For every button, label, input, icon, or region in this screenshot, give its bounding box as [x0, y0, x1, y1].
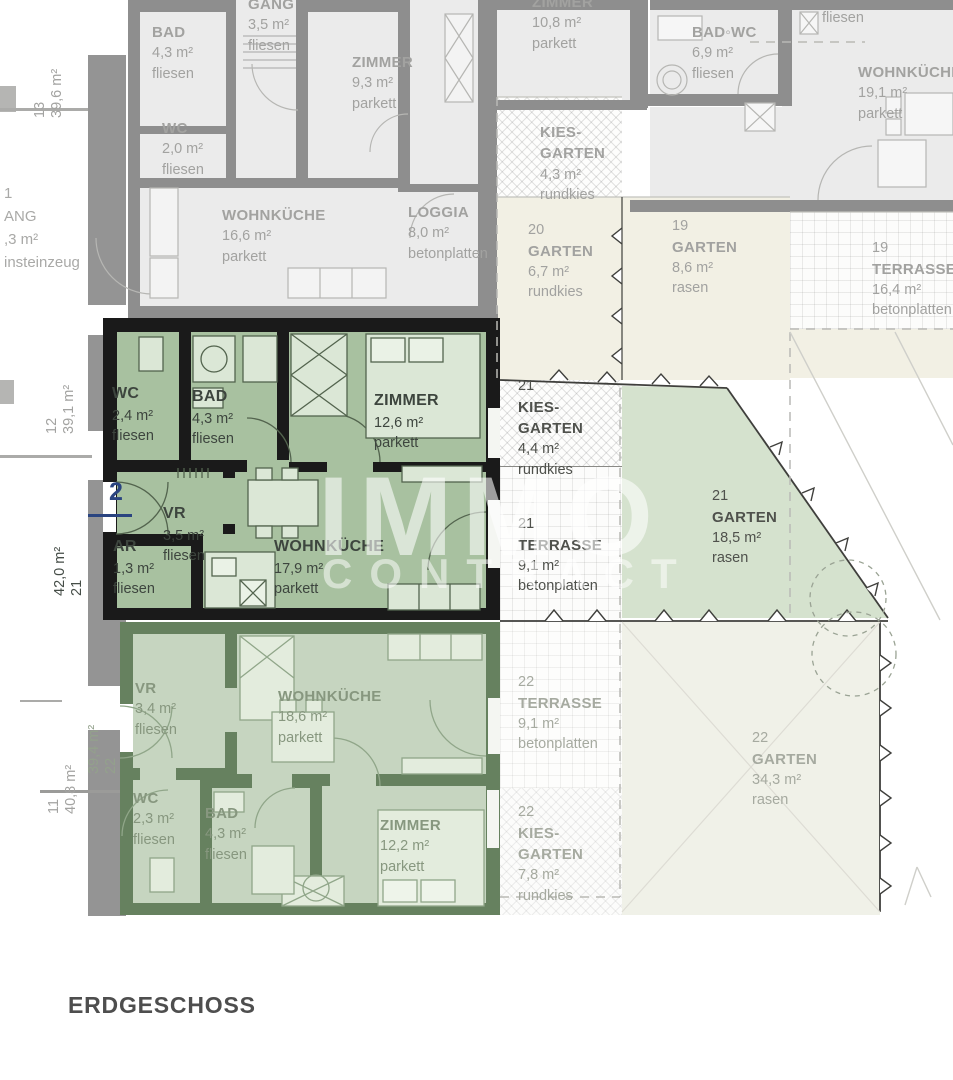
wall-top-2	[128, 0, 232, 12]
room-label-zimmer-top: ZIMMER 9,3 m² parkett	[352, 52, 413, 114]
room-label-wc-21: WC 2,4 m² fliesen	[112, 383, 154, 447]
room-label-wohnkueche-top: WOHNKÜCHE 16,6 m² parkett	[222, 205, 326, 267]
wall-top-7	[226, 0, 236, 182]
room-label-wohnkueche-22: WOHNKÜCHE 18,6 m² parkett	[278, 686, 382, 748]
unit21-door-opening-bad	[247, 460, 289, 472]
unit21-door-opening-vr	[223, 478, 235, 524]
wall-top-8	[296, 0, 308, 182]
wall-top-16	[497, 100, 647, 110]
area-label-kiesgarten-22: 22 KIES- GARTEN 7,8 m² rundkies	[518, 802, 583, 906]
room-label-bad-21: BAD 4,3 m² fliesen	[192, 386, 234, 450]
room-label-zimmer2-top: ZIMMER 10,8 m² parkett	[532, 0, 593, 54]
room-label-zimmer-21: ZIMMER 12,6 m² parkett	[374, 390, 439, 454]
margin-label-unit22: 39,4 m² 22	[86, 725, 120, 774]
wall-line-3	[20, 700, 62, 702]
unit22-door-opening-zimmer	[330, 774, 376, 788]
area-label-kiesgarten-top: KIES- GARTEN 4,3 m² rundkies	[540, 122, 605, 206]
room-label-ar-21: AR 1,3 m² fliesen	[113, 536, 155, 600]
wall-top-15	[630, 0, 648, 108]
area-garten-22	[622, 622, 880, 915]
unit21-door-opening-zimmer	[327, 460, 373, 472]
wall-top-6	[782, 0, 953, 10]
unit21-room-wohnkueche-nook	[203, 534, 247, 608]
unit22-entry-door	[120, 704, 133, 752]
room-label-badwc: BAD◦WC 6,9 m² fliesen	[692, 22, 757, 84]
wall-top-19	[630, 200, 953, 212]
area-label-terrasse-22: 22 TERRASSE 9,1 m² betonplatten	[518, 672, 602, 755]
room-label-bad-top: BAD 4,3 m² fliesen	[152, 22, 194, 84]
area-label-terrasse-21: 21 TERRASSE 9,1 m² betonplatten	[518, 514, 602, 597]
unit22-door-opening-wc	[140, 768, 176, 782]
page-title-floor: ERDGESCHOSS	[68, 992, 256, 1019]
area-garten-19-right	[790, 329, 953, 378]
margin-label-unit11: 11 40,8 m²	[46, 765, 80, 814]
area-label-garten-21: 21 GARTEN 18,5 m² rasen	[712, 486, 777, 569]
room-label-wc-22: WC 2,3 m² fliesen	[133, 788, 175, 850]
room-label-vr-22: VR 3,4 m² fliesen	[135, 678, 177, 740]
unit21-window-zimmer	[488, 408, 500, 458]
room-label-zimmer-22: ZIMMER 12,2 m² parkett	[380, 815, 441, 877]
unit21-terrace-door	[488, 500, 500, 568]
room-label-gang-top: GANG 3,5 m² fliesen	[248, 0, 294, 56]
room-label-fliesen-fragment: fliesen	[822, 8, 864, 29]
room-label-bad-22: BAD 4,3 m² fliesen	[205, 803, 247, 865]
room-label-wc-top: WC 2,0 m² fliesen	[162, 118, 204, 180]
area-label-garten-19: 19 GARTEN 8,6 m² rasen	[672, 216, 737, 299]
room-label-loggia: LOGGIA 8,0 m² betonplatten	[408, 202, 488, 264]
wall-top-10	[478, 0, 497, 318]
area-label-garten-22: 22 GARTEN 34,3 m² rasen	[752, 728, 817, 811]
area-label-terrasse-19: 19 TERRASSE 16,4 m² betonplatten	[872, 238, 953, 321]
room-label-wohnkueche-21: WOHNKÜCHE 17,9 m² parkett	[274, 536, 384, 600]
area-label-garten-20: 20 GARTEN 6,7 m² rundkies	[528, 220, 593, 303]
floor-plan-canvas: BAD 4,3 m² fliesen GANG 3,5 m² fliesen W…	[0, 0, 953, 1080]
wall-top-3	[298, 0, 410, 12]
unit22-window-zimmer	[487, 790, 499, 848]
unit22-door-opening-vr	[225, 688, 237, 732]
wall-top-13	[398, 184, 492, 192]
unit22-terrace-door	[488, 698, 500, 754]
entrance-number-marker: 2	[109, 478, 123, 507]
corridor-fragment-label: 1 ANG ,3 m² insteinzeug	[4, 182, 80, 274]
wall-top-14	[128, 306, 498, 318]
room-label-vr-21: VR 3,5 m² fliesen	[163, 503, 205, 567]
margin-label-unit13: 13 39,6 m²	[32, 69, 66, 118]
entrance-marker-line	[88, 514, 132, 517]
margin-label-unit21: 42,0 m² 21	[52, 547, 86, 596]
unit22-door-opening-bad	[252, 774, 292, 790]
area-label-kiesgarten-21: 21 KIES- GARTEN 4,4 m² rundkies	[518, 376, 583, 480]
wall-top-17	[648, 94, 782, 106]
wall-stairwell-1	[88, 55, 126, 305]
wall-top-5	[650, 0, 782, 10]
room-label-wohnkueche2: WOHNKÜCHE 19,1 m² parkett	[858, 62, 953, 124]
wall-top-18	[778, 0, 792, 106]
wall-stub-2	[0, 380, 14, 404]
wall-top-1	[128, 0, 140, 318]
wall-line-2	[0, 455, 92, 458]
margin-label-unit12: 12 39,1 m²	[44, 385, 78, 434]
